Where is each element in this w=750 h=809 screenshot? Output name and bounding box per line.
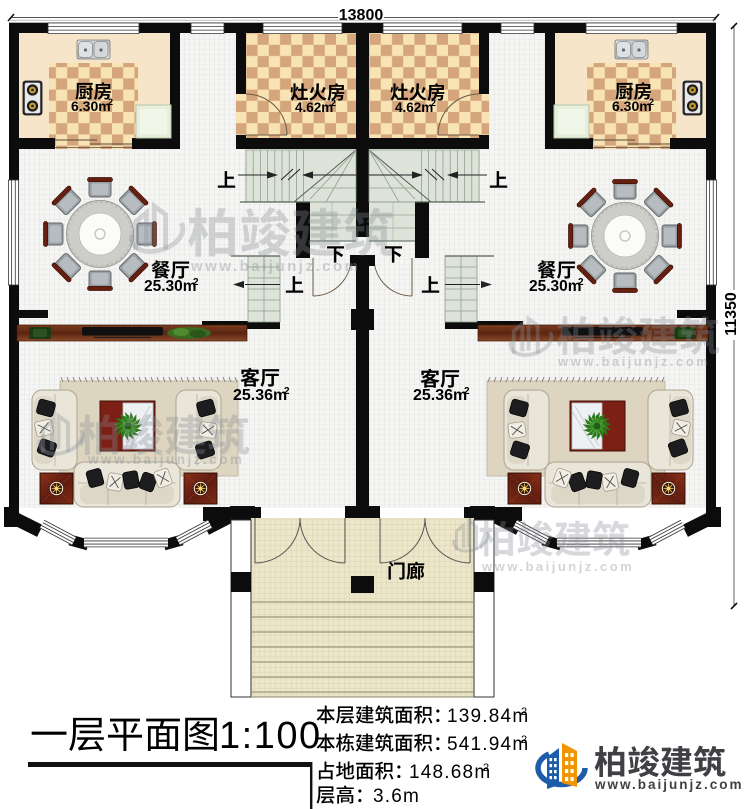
svg-text:2: 2 xyxy=(108,97,113,107)
svg-text:6.30m: 6.30m xyxy=(612,98,652,114)
svg-text:www.baijunjz.com: www.baijunjz.com xyxy=(481,559,634,574)
svg-text:www.baijunjz.com: www.baijunjz.com xyxy=(557,354,710,369)
svg-text:25.30m: 25.30m xyxy=(144,278,197,295)
svg-text:139.84m: 139.84m xyxy=(447,706,529,727)
svg-text:www.baijunjz.com: www.baijunjz.com xyxy=(87,452,245,467)
svg-text:2: 2 xyxy=(284,386,290,397)
svg-text:6.30m: 6.30m xyxy=(71,98,111,114)
svg-text:2: 2 xyxy=(431,98,436,108)
svg-text:2: 2 xyxy=(578,277,584,288)
svg-text:4.62m: 4.62m xyxy=(295,100,333,115)
svg-text:1:100: 1:100 xyxy=(219,715,322,757)
svg-text:541.94m: 541.94m xyxy=(447,734,529,755)
svg-text:2: 2 xyxy=(521,734,527,746)
svg-text:13800: 13800 xyxy=(339,7,384,24)
svg-text:2: 2 xyxy=(521,706,527,718)
svg-text:2: 2 xyxy=(649,97,654,107)
svg-text:25.36m: 25.36m xyxy=(233,387,287,404)
svg-text:148.68m: 148.68m xyxy=(409,762,491,783)
svg-text:2: 2 xyxy=(331,98,336,108)
svg-text:www.baijunjz.com: www.baijunjz.com xyxy=(594,777,744,792)
svg-text:11350: 11350 xyxy=(723,292,740,336)
svg-text:4.62m: 4.62m xyxy=(395,100,433,115)
svg-text:2: 2 xyxy=(483,762,489,774)
svg-text:3.6m: 3.6m xyxy=(373,786,420,807)
svg-text:2: 2 xyxy=(193,277,199,288)
svg-text:2: 2 xyxy=(464,386,470,397)
svg-text:25.30m: 25.30m xyxy=(529,278,582,295)
svg-text:25.36m: 25.36m xyxy=(413,387,467,404)
